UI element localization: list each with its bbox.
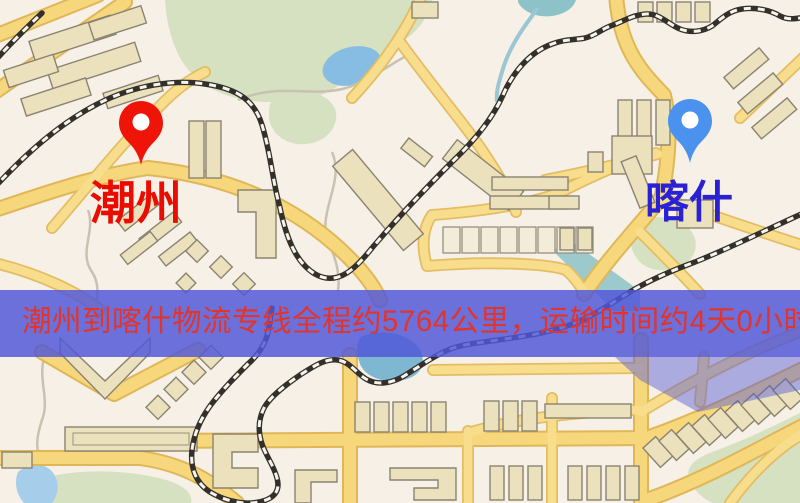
building [587,466,601,500]
road [433,368,640,370]
building [695,2,710,22]
building [538,227,555,253]
map-canvas[interactable]: 潮州 喀什 潮州到喀什物流专线全程约5764公里，运输时间约4天0小时. [0,0,800,503]
building [625,466,639,500]
map-view[interactable]: 潮州 喀什 潮州到喀什物流专线全程约5764公里，运输时间约4天0小时. [0,0,800,503]
building [606,466,620,500]
building [588,152,603,172]
building [65,427,197,451]
building [393,402,408,432]
destination-pin-hole [682,112,699,129]
building [412,2,438,18]
origin-pin-hole [133,114,150,131]
building [412,402,427,432]
building [443,227,460,253]
building [500,227,517,253]
building [522,401,537,431]
building [509,466,523,500]
building [560,228,574,250]
building [374,402,389,432]
building [189,121,204,178]
route-banner-text: 潮州到喀什物流专线全程约5764公里，运输时间约4天0小时. [22,305,800,338]
building [2,452,32,468]
building [676,2,691,22]
destination-label: 喀什 [645,178,733,227]
building [355,402,370,432]
building [549,196,579,209]
building [431,402,446,432]
building [484,401,499,431]
building [492,177,568,190]
building [528,466,542,500]
building [481,227,498,253]
building [490,466,504,500]
building [503,401,518,431]
building [519,227,536,253]
building [656,100,670,145]
origin-label: 潮州 [90,177,182,229]
building [578,228,592,250]
building [545,404,631,418]
building [462,227,479,253]
building [206,121,221,178]
building [568,466,582,500]
